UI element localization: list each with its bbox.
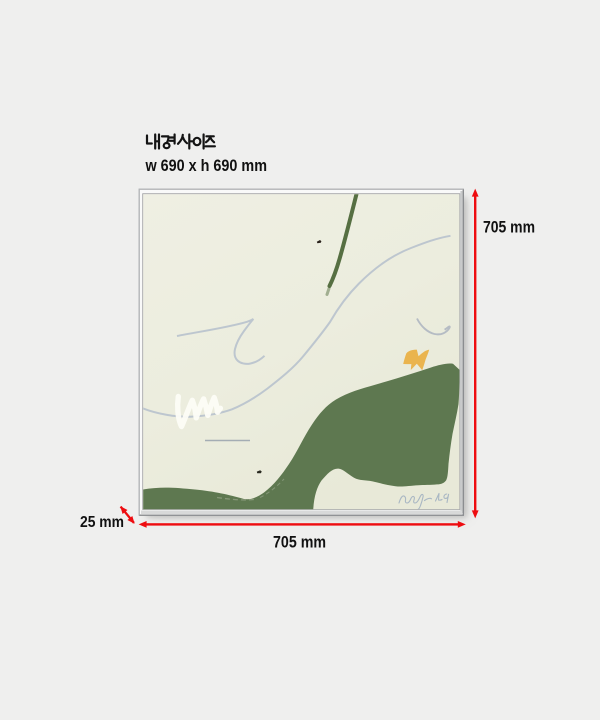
svg-text:705 mm: 705 mm xyxy=(483,219,535,237)
svg-text:25 mm: 25 mm xyxy=(80,514,124,531)
svg-text:705 mm: 705 mm xyxy=(273,534,326,552)
svg-text:w 690 x h 690 mm: w 690 x h 690 mm xyxy=(145,157,267,175)
